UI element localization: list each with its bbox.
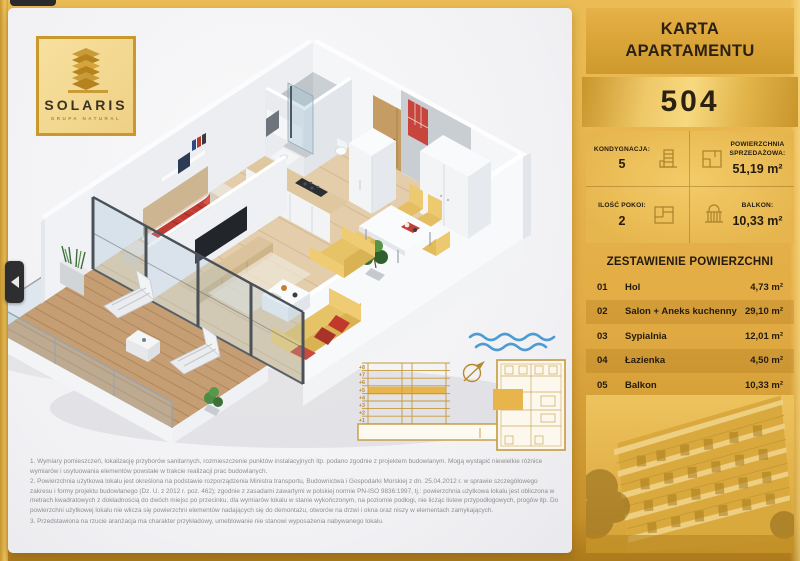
building-photo-art (586, 395, 794, 553)
table-row: 01 Hol 4,73 m² (586, 275, 794, 300)
stat-label: KONDYGNACJA: (594, 146, 650, 155)
floor-label: +2 (359, 411, 365, 417)
floor-label: +3 (359, 403, 365, 409)
stat-powierzchnia: POWIERZCHNIA SPRZEDAŻOWA: 51,19 m² (690, 131, 794, 187)
stat-label: ILOŚĆ POKOI: (598, 202, 646, 211)
footnotes: 1. Wymiary pomieszczeń, lokalizację przy… (30, 457, 560, 527)
left-arrow-icon (11, 276, 19, 288)
stat-balkon: BALKON: 10,33 m² (690, 187, 794, 243)
stat-value: 51,19 m² (732, 162, 782, 176)
card-title: KARTA APARTAMENTU (586, 8, 794, 74)
floor-label: +4 (359, 395, 365, 401)
stat-value: 5 (619, 157, 626, 171)
apartment-info-panel: KARTA APARTAMENTU 504 KONDYGNACJA: 5 (580, 0, 800, 561)
floor-label: +1 (359, 418, 365, 424)
balcony-icon (701, 202, 727, 228)
apartment-number: 504 (582, 77, 798, 127)
stat-label: POWIERZCHNIA (730, 141, 784, 148)
footnote-1: 1. Wymiary pomieszczeń, lokalizację przy… (30, 457, 560, 476)
footnote-3: 3. Przedstawiona na rzucie aranżacja ma … (30, 517, 560, 527)
solaris-building-icon (58, 46, 114, 96)
stat-value: 10,33 m² (732, 214, 782, 228)
key-plan (493, 360, 565, 450)
footnote-2: 2. Powierzchnia użytkowa lokalu jest okr… (30, 477, 560, 515)
building-photo (586, 395, 794, 553)
floor-label: +8 (359, 365, 365, 371)
rooms-icon (651, 202, 677, 228)
card-title-line2: APARTAMENTU (625, 41, 754, 63)
table-row: 05 Balkon 10,33 m² (586, 373, 794, 398)
brand-subtitle: GRUPA NATURAL (51, 116, 121, 121)
key-plan-highlighted-unit (493, 389, 523, 410)
table-row: 04 Łazienka 4,50 m² (586, 349, 794, 374)
stat-kondygnacja: KONDYGNACJA: 5 (586, 131, 690, 187)
areas-table: ZESTAWIENIE POWIERZCHNI 01 Hol 4,73 m² 0… (586, 250, 794, 398)
fridge-column (349, 128, 396, 214)
brand-logo: SOLARIS GRUPA NATURAL (36, 36, 136, 136)
stat-label: BALKON: (742, 202, 774, 211)
stats-grid: KONDYGNACJA: 5 POWIERZCHNIA SPRZ (586, 131, 794, 243)
areas-table-title: ZESTAWIENIE POWIERZCHNI (586, 256, 794, 268)
viewer-tab-handle (10, 0, 56, 6)
floor-label: +6 (359, 380, 365, 386)
card-title-line1: KARTA (661, 19, 720, 41)
floor-plan-card: +8 +7 +6 +5 +4 +3 +2 +1 (8, 8, 572, 553)
compass-icon (464, 361, 486, 382)
stat-pokoje: ILOŚĆ POKOI: 2 (586, 187, 690, 243)
brand-name: SOLARIS (44, 97, 127, 113)
apartment-card-page: +8 +7 +6 +5 +4 +3 +2 +1 (0, 0, 800, 561)
floor-label: +5 (359, 388, 365, 394)
floor-label: +7 (359, 373, 365, 379)
table-row: 03 Sypialnia 12,01 m² (586, 324, 794, 349)
floor-area-icon (699, 146, 725, 172)
stat-value: 2 (619, 214, 626, 228)
water-waves-icon (470, 334, 554, 350)
previous-page-button[interactable] (5, 261, 24, 303)
table-row: 02 Salon + Aneks kuchenny 29,10 m² (586, 300, 794, 325)
building-icon (655, 146, 681, 172)
